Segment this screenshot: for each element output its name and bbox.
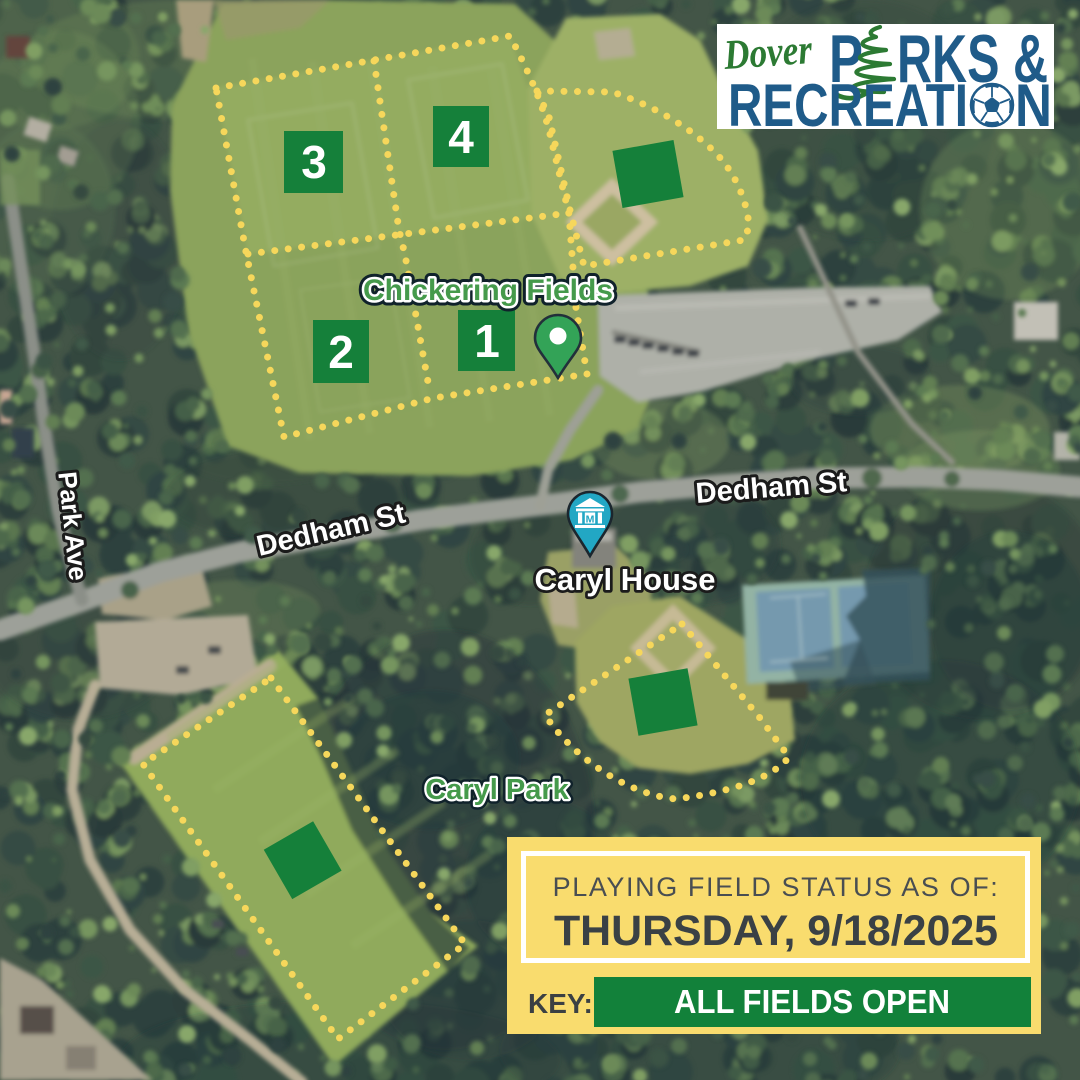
svg-text:Chickering Fields: Chickering Fields: [363, 274, 613, 307]
svg-text:ALL FIELDS OPEN: ALL FIELDS OPEN: [674, 983, 950, 1020]
svg-text:2: 2: [328, 326, 354, 378]
svg-text:KEY:: KEY:: [528, 988, 593, 1019]
svg-text:3: 3: [301, 136, 327, 188]
svg-text:PLAYING FIELD STATUS AS OF:: PLAYING FIELD STATUS AS OF:: [553, 872, 1000, 902]
svg-text:Caryl Park: Caryl Park: [425, 774, 569, 806]
svg-text:THURSDAY, 9/18/2025: THURSDAY, 9/18/2025: [554, 907, 998, 955]
svg-text:M: M: [586, 514, 595, 526]
svg-text:4: 4: [448, 111, 474, 163]
svg-text:Caryl House: Caryl House: [535, 562, 716, 597]
svg-text:1: 1: [474, 315, 500, 367]
svg-text:N: N: [1015, 72, 1052, 139]
svg-text:RECREATI: RECREATI: [728, 72, 968, 139]
